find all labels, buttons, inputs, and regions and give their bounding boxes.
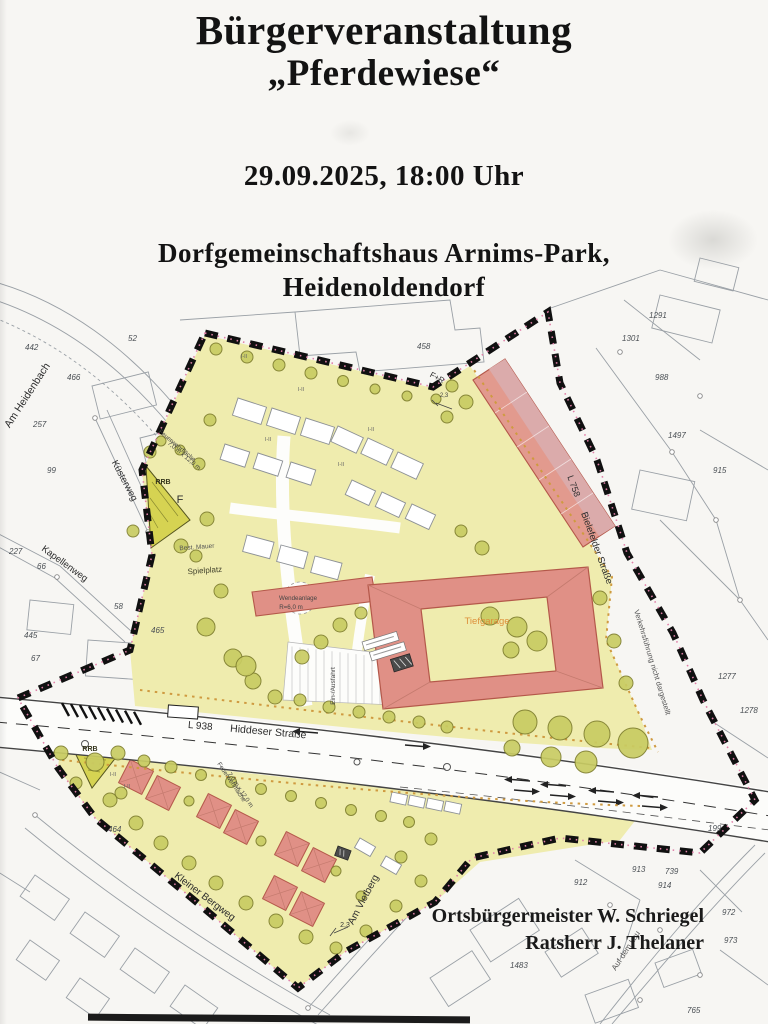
parcel-number: 67 [31, 654, 40, 663]
parcel-number: 99 [47, 466, 56, 475]
map-label: Kapellenweg [39, 544, 89, 585]
tree-icon [513, 710, 537, 734]
map-label: Verkehrsführung nicht dargestellt [632, 609, 673, 717]
tree-icon [575, 751, 597, 773]
tree-icon [305, 367, 317, 379]
scan-edge-shadow [0, 0, 7, 1024]
map-label: Ein-/Ausfahrt [330, 667, 337, 705]
parcel-number: 458 [417, 342, 431, 351]
existing-building-outline [120, 948, 169, 993]
parcel-number: 914 [658, 881, 672, 890]
tree-icon [316, 798, 327, 809]
tree-icon [200, 512, 214, 526]
survey-point-icon [55, 575, 60, 580]
parcel-number: 973 [724, 936, 738, 945]
tree-icon [204, 414, 216, 426]
tree-icon [390, 900, 402, 912]
tree-icon [138, 755, 150, 767]
survey-point-icon [670, 450, 675, 455]
tree-icon [111, 746, 125, 760]
flyer-page: Am HeidenbachKüsterwegKapellenwegL 938Hi… [0, 0, 768, 1024]
tree-icon [268, 690, 282, 704]
parcel-number: 445 [24, 631, 38, 640]
parcel-number: 739 [665, 867, 679, 876]
map-label: I-II [110, 772, 117, 778]
tree-icon [256, 784, 267, 795]
parcel-number: 1301 [622, 334, 640, 343]
existing-building-outline [632, 470, 695, 521]
parcel-number: 52 [128, 334, 137, 343]
signature-mayor: Ortsbürgermeister W. Schriegel [432, 903, 704, 930]
tree-icon [404, 817, 415, 828]
parcel-number: 465 [151, 626, 165, 635]
survey-point-icon [698, 973, 703, 978]
map-label: I-II [124, 784, 131, 790]
tree-icon [54, 746, 68, 760]
tree-icon [619, 676, 633, 690]
tree-icon [214, 584, 228, 598]
survey-point-icon [714, 518, 719, 523]
tree-icon [184, 796, 194, 806]
tree-icon [504, 740, 520, 756]
map-label: I-II [265, 437, 272, 443]
tree-icon [210, 343, 222, 355]
tree-icon [330, 942, 342, 954]
map-label: F [177, 494, 184, 506]
tree-icon [154, 836, 168, 850]
map-label: RRB [155, 479, 170, 486]
map-label: 2,3 [440, 393, 449, 399]
tree-icon [376, 811, 387, 822]
tree-icon [182, 856, 196, 870]
tree-icon [593, 591, 607, 605]
tree-icon [548, 716, 572, 740]
parcel-number: 464 [108, 825, 122, 834]
tree-icon [346, 805, 357, 816]
existing-building-outline [430, 951, 490, 1007]
parcel-number: 913 [632, 865, 646, 874]
map-label: I-II [298, 387, 305, 393]
survey-point-icon [618, 350, 623, 355]
parcel-number: 58 [114, 602, 123, 611]
parcel-number: 915 [713, 466, 727, 475]
parcel-number: 1291 [649, 311, 667, 320]
tree-icon [425, 833, 437, 845]
parcel-number: 1483 [510, 961, 528, 970]
tree-icon [541, 747, 561, 767]
tree-icon [383, 711, 395, 723]
tree-icon [503, 642, 519, 658]
tree-icon [395, 851, 407, 863]
tree-icon [196, 770, 207, 781]
existing-building-outline [585, 979, 638, 1023]
tree-icon [314, 635, 328, 649]
tree-icon [584, 721, 610, 747]
tree-icon [127, 525, 139, 537]
tree-icon [331, 866, 341, 876]
tree-icon [295, 650, 309, 664]
tree-icon [441, 411, 453, 423]
tree-icon [86, 753, 104, 771]
parcel-number: 199 [708, 824, 722, 833]
parcel-number: 442 [25, 343, 39, 352]
survey-point-icon [738, 598, 743, 603]
map-label: I-II [241, 354, 248, 360]
parcel-number: 466 [67, 373, 81, 382]
tree-icon [459, 395, 473, 409]
tree-icon [455, 525, 467, 537]
tree-icon [286, 791, 297, 802]
map-label: Küsterweg [109, 458, 140, 503]
tree-icon [236, 656, 256, 676]
tree-icon [607, 634, 621, 648]
tree-icon [165, 761, 177, 773]
map-label: R=6,0 m [279, 604, 303, 611]
existing-building-outline [92, 372, 157, 419]
tree-icon [129, 816, 143, 830]
parcel-number: 227 [8, 547, 23, 556]
tree-icon [209, 876, 223, 890]
tree-icon [475, 541, 489, 555]
tree-icon [441, 721, 453, 733]
survey-point-icon [306, 1006, 311, 1011]
tree-icon [507, 617, 527, 637]
site-plan-map: Am HeidenbachKüsterwegKapellenwegL 938Hi… [0, 0, 768, 1024]
bus-stop-mark [168, 705, 199, 719]
tree-icon [190, 550, 202, 562]
tree-icon [256, 836, 266, 846]
tree-icon [333, 618, 347, 632]
tree-icon [197, 618, 215, 636]
map-label: Tiefgarage [464, 616, 509, 627]
tree-icon [338, 376, 349, 387]
survey-point-icon [93, 416, 98, 421]
signature-councilman: Ratsherr J. Thelaner [432, 930, 704, 957]
tree-icon [273, 359, 285, 371]
map-label: 2,3 [340, 922, 350, 929]
parcel-number: 912 [574, 878, 588, 887]
tree-icon [618, 728, 648, 758]
map-label: L 938 [187, 720, 213, 733]
tree-icon [413, 716, 425, 728]
tree-icon [299, 930, 313, 944]
existing-building-outline [27, 600, 74, 634]
tree-icon [446, 380, 458, 392]
tree-icon [415, 875, 427, 887]
tree-icon [370, 384, 380, 394]
tree-icon [239, 896, 253, 910]
tree-icon [355, 607, 367, 619]
existing-building-outline [16, 940, 59, 980]
parcel-number: 1278 [740, 706, 758, 715]
tree-icon [294, 694, 306, 706]
existing-building-outline [70, 912, 119, 957]
parcel-number: 1277 [718, 672, 736, 681]
survey-point-icon [638, 998, 643, 1003]
map-label: I-II [338, 462, 345, 468]
survey-point-icon [698, 394, 703, 399]
tree-icon [269, 914, 283, 928]
parcel-number: 765 [687, 1006, 701, 1015]
parcel-number: 66 [37, 562, 46, 571]
signature-block: Ortsbürgermeister W. Schriegel Ratsherr … [432, 903, 704, 957]
map-label: Wendeanlage [279, 595, 318, 602]
parcel-number: 1497 [668, 431, 686, 440]
tree-icon [527, 631, 547, 651]
tree-icon [402, 391, 412, 401]
survey-point-icon [33, 813, 38, 818]
existing-building-outline [20, 875, 69, 920]
parcel-number: 257 [32, 420, 47, 429]
map-label: RRB [82, 746, 97, 753]
tree-icon [353, 706, 365, 718]
parcel-number: 988 [655, 373, 669, 382]
map-label: I-II [368, 427, 375, 433]
parcel-number: 972 [722, 908, 736, 917]
existing-building-outline [66, 978, 109, 1018]
